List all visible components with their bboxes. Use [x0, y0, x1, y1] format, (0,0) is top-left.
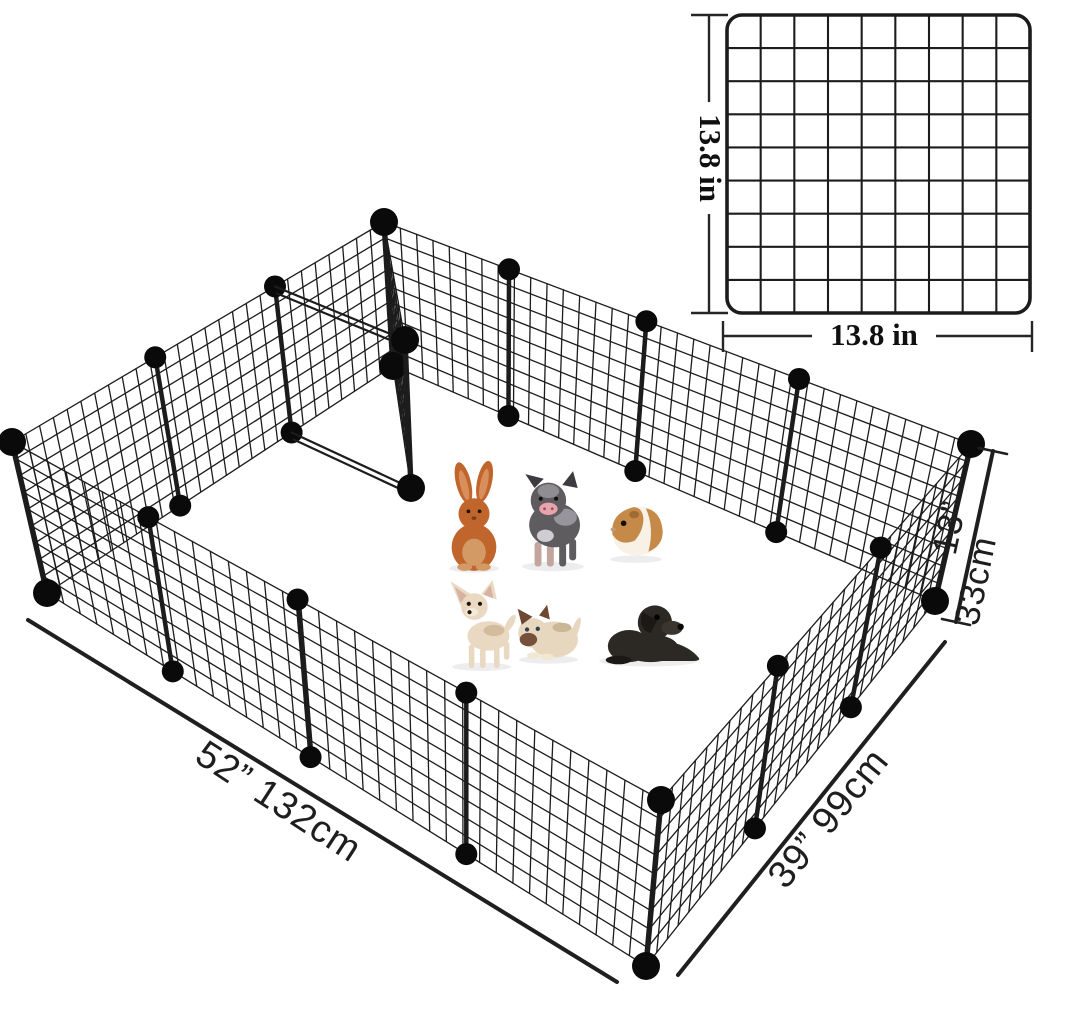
- chihuahua: [451, 580, 518, 671]
- length-dimension-label: 52” 132cm: [188, 733, 369, 871]
- guinea-pig-shadow: [610, 555, 662, 562]
- guinea-pig: [610, 507, 663, 563]
- pen-gate-panel: [275, 208, 425, 502]
- panel-detail-grid: [727, 15, 1030, 313]
- piglet: [522, 471, 584, 571]
- playpen-dimension-diagram: 52” 132cm 39” 99cm 13” 33cm 13.8 in 13.8…: [0, 0, 1080, 1027]
- panel-width-dimension: 13.8 in: [723, 317, 1032, 352]
- panel-height-dimension: 13.8 in: [691, 15, 728, 313]
- dimension-annotations: 52” 132cm 39” 99cm 13” 33cm: [28, 448, 1007, 982]
- kitten: [518, 605, 583, 664]
- puppy: [599, 605, 699, 666]
- scene: 52” 132cm 39” 99cm 13” 33cm 13.8 in 13.8…: [0, 0, 1080, 1027]
- animals: [449, 459, 699, 671]
- panel-height-label: 13.8 in: [693, 114, 728, 202]
- rabbit: [449, 459, 499, 572]
- panel-detail: 13.8 in 13.8 in: [691, 15, 1032, 352]
- panel-width-label: 13.8 in: [830, 317, 918, 352]
